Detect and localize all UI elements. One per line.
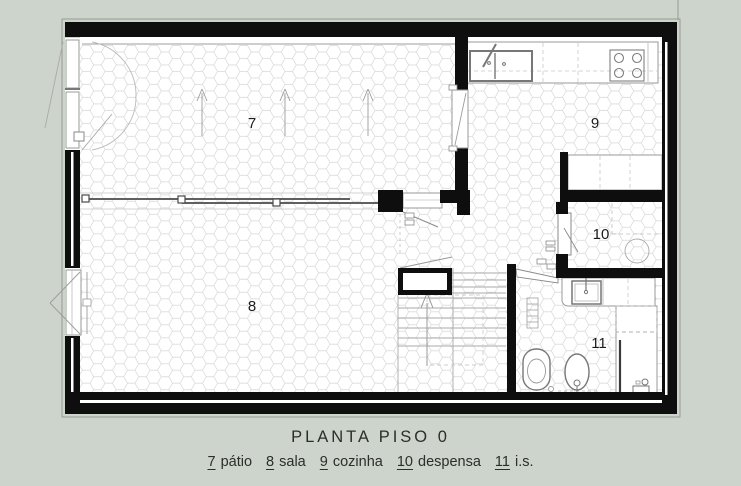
gate-leaf bbox=[45, 42, 63, 128]
legend-label: cozinha bbox=[333, 454, 383, 470]
plan-legend: 7pátio 8sala 9cozinha 10despensa 11i.s. bbox=[0, 454, 741, 470]
legend-num: 9 bbox=[320, 454, 328, 470]
wall-stairs-bath bbox=[507, 264, 516, 398]
shower bbox=[616, 306, 657, 395]
sliding-pocket bbox=[403, 193, 442, 208]
wall-bottom-outer bbox=[65, 403, 677, 414]
legend-num: 11 bbox=[495, 454, 510, 470]
pantry-door-panel bbox=[558, 213, 571, 255]
wall-top bbox=[65, 22, 677, 37]
door-handle bbox=[74, 132, 84, 141]
floor-field bbox=[80, 37, 662, 392]
room-label-despensa: 10 bbox=[593, 226, 610, 243]
wall-patio-kitchen-b bbox=[455, 148, 468, 192]
patio-kitchen-window bbox=[449, 85, 468, 151]
legend-label: despensa bbox=[418, 454, 481, 470]
wall-pantry-bath bbox=[556, 268, 662, 278]
glazing-pillar bbox=[378, 190, 403, 212]
legend-label: sala bbox=[279, 454, 306, 470]
room-label-sala: 8 bbox=[248, 298, 256, 315]
legend-num: 8 bbox=[266, 454, 274, 470]
room-label-patio: 7 bbox=[248, 115, 256, 132]
floor-plan-page: 7 8 9 10 11 PLANTA PISO 0 7pátio 8sala 9… bbox=[0, 0, 741, 486]
legend-num: 7 bbox=[207, 454, 215, 470]
legend-label: i.s. bbox=[515, 454, 534, 470]
floor-plan-drawing: 7 8 9 10 11 bbox=[0, 0, 741, 424]
room-label-is: 11 bbox=[591, 335, 607, 352]
legend-num: 10 bbox=[397, 454, 413, 470]
bath-counter bbox=[562, 278, 655, 306]
legend-label: pátio bbox=[221, 454, 252, 470]
wall-kitchen-pantry bbox=[560, 190, 662, 202]
room-label-cozinha: 9 bbox=[591, 115, 599, 132]
kitchen-shelf-niche bbox=[568, 155, 662, 190]
plan-title: PLANTA PISO 0 bbox=[0, 428, 741, 447]
caption-block: PLANTA PISO 0 7pátio 8sala 9cozinha 10de… bbox=[0, 428, 741, 470]
wall-patio-kitchen-a bbox=[455, 37, 468, 90]
wall-right bbox=[662, 37, 677, 403]
wall-bottom-inner bbox=[80, 392, 662, 400]
